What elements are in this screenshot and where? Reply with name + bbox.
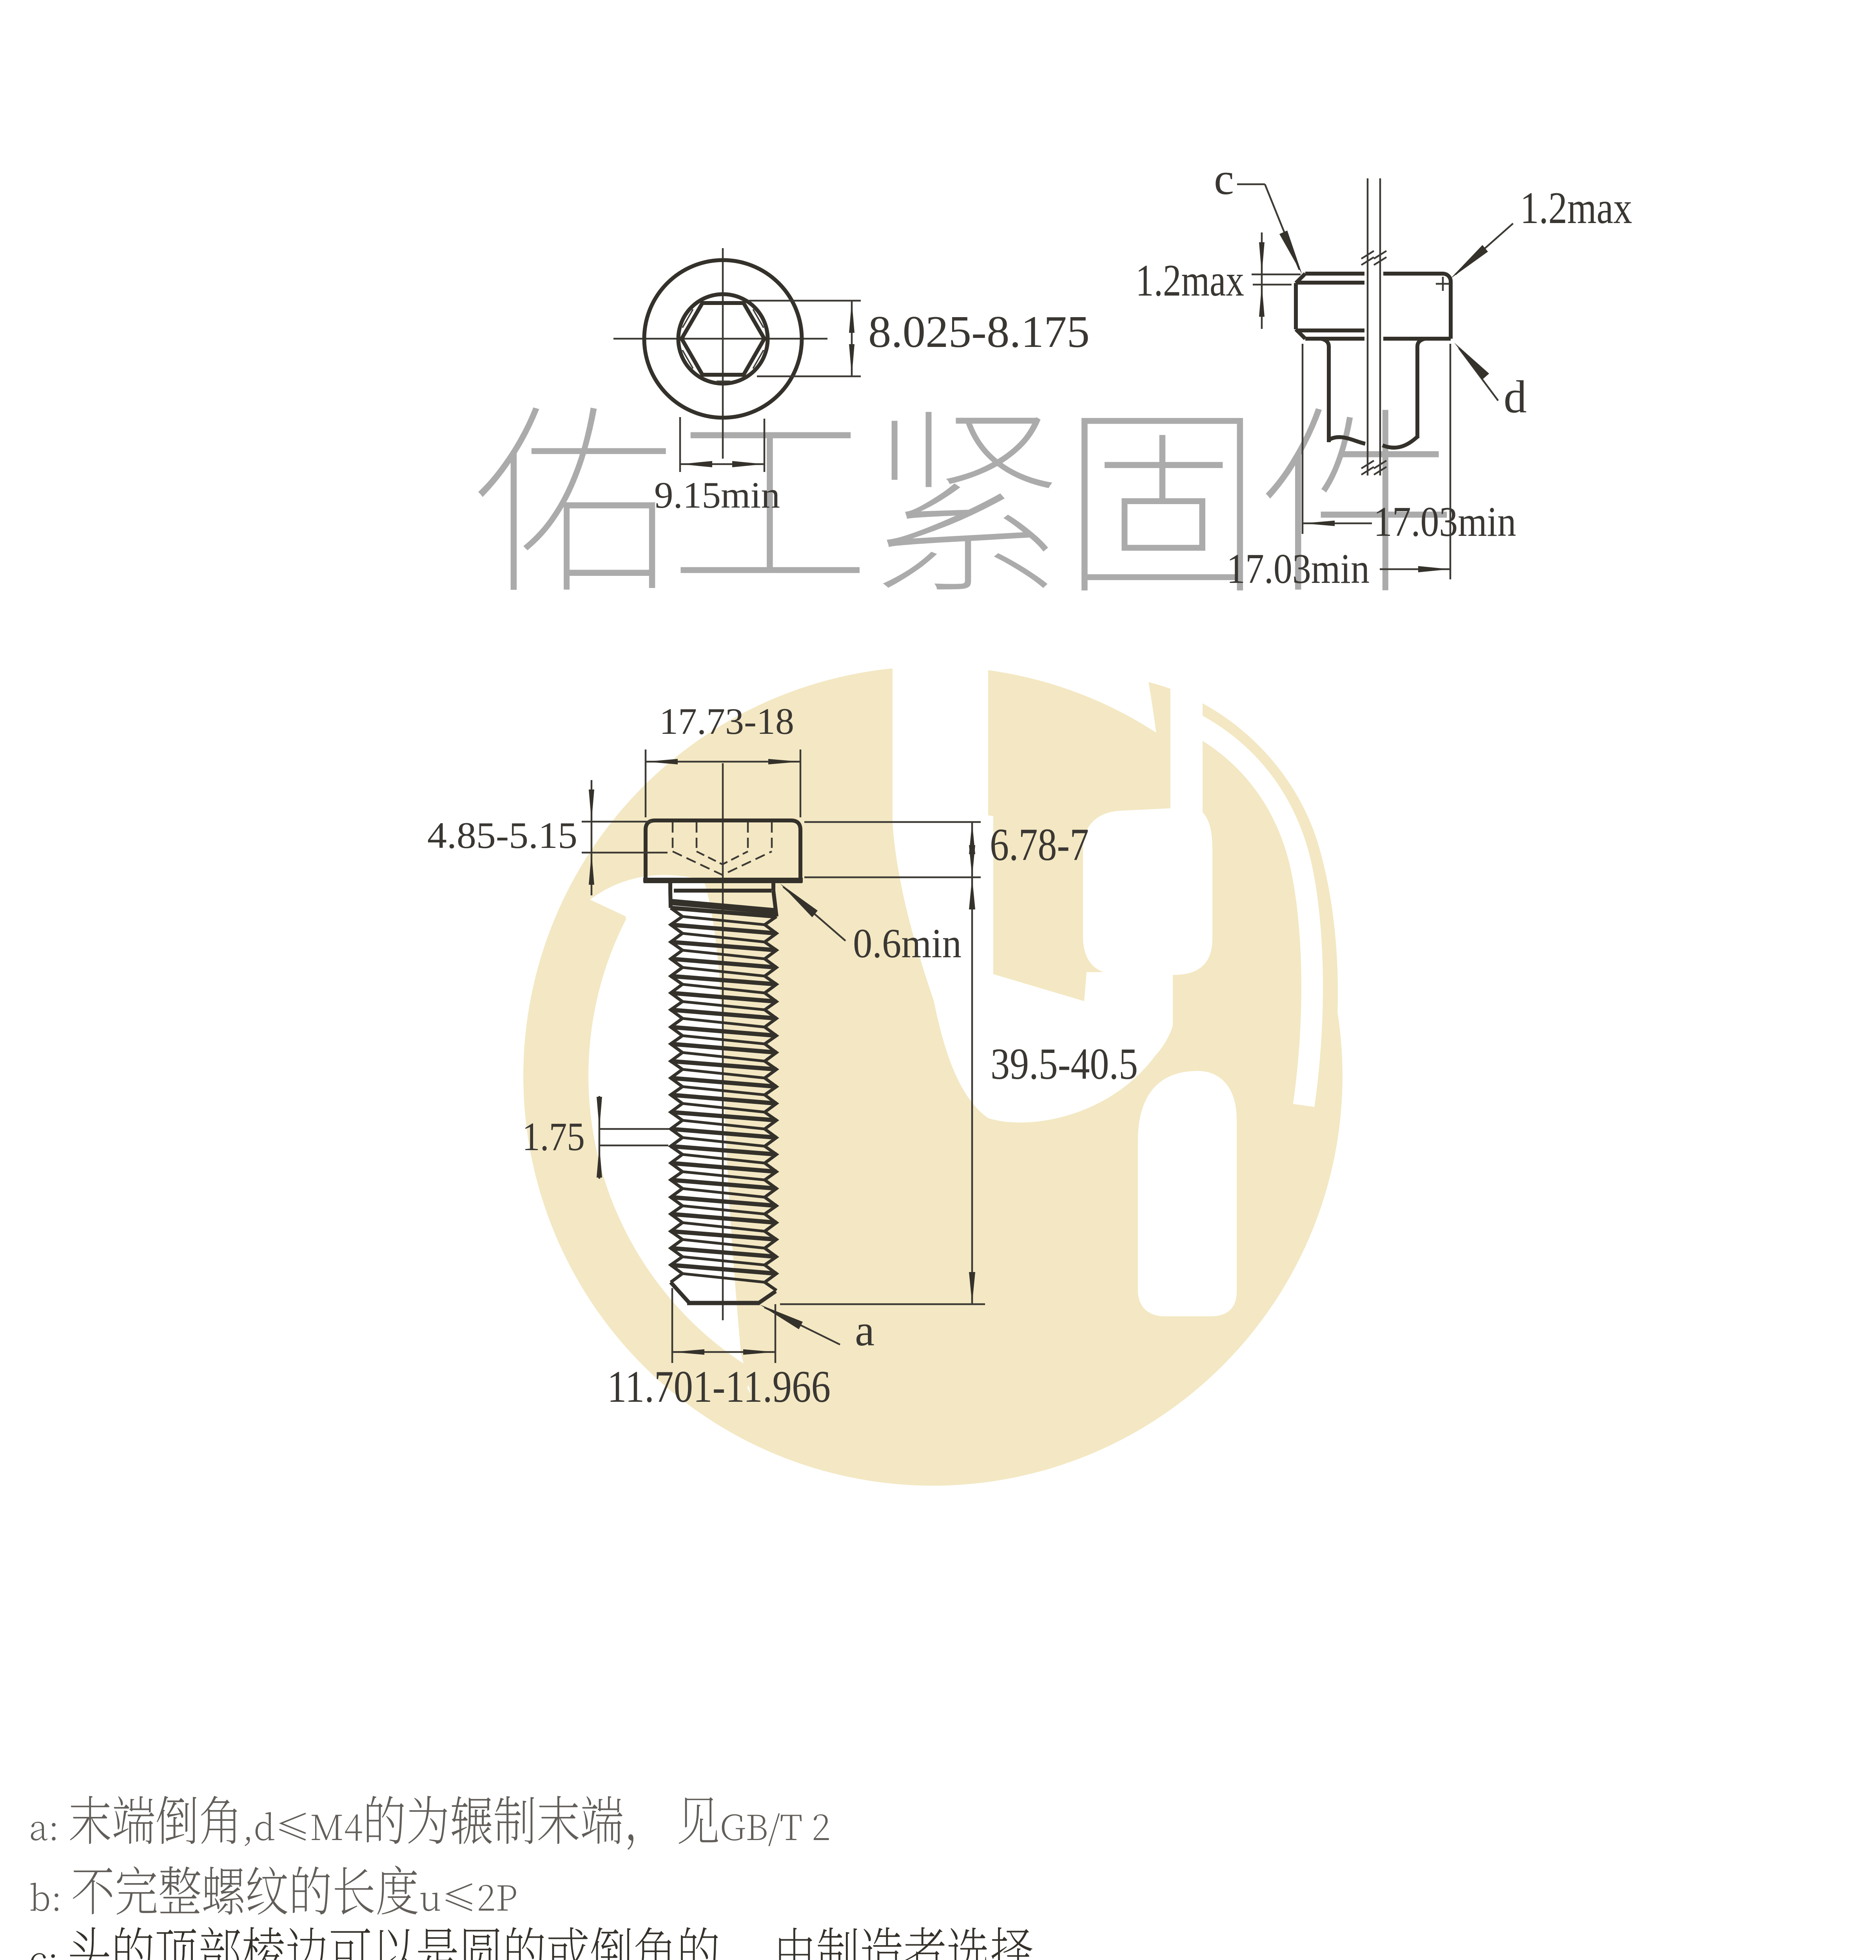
svg-text:11.701-11.966: 11.701-11.966 [607,1362,831,1412]
svg-text:8.025-8.175: 8.025-8.175 [868,307,1090,357]
svg-text:1.2max: 1.2max [1136,256,1244,305]
svg-text:0.6min: 0.6min [853,920,962,966]
svg-text:6.78-7: 6.78-7 [990,819,1089,870]
svg-text:17.03min: 17.03min [1373,499,1516,545]
svg-text:1.75: 1.75 [522,1114,585,1159]
svg-text:9.15min: 9.15min [654,474,780,516]
svg-text:17.03min: 17.03min [1226,546,1370,592]
svg-text:39.5-40.5: 39.5-40.5 [991,1040,1138,1089]
svg-text:4.85-5.15: 4.85-5.15 [427,815,577,856]
svg-text:c: c [1214,154,1234,204]
svg-text:17.73-18: 17.73-18 [659,701,794,742]
svg-text:1.2max: 1.2max [1520,183,1632,233]
svg-text:a: a [855,1306,874,1355]
svg-text:d: d [1504,371,1527,423]
